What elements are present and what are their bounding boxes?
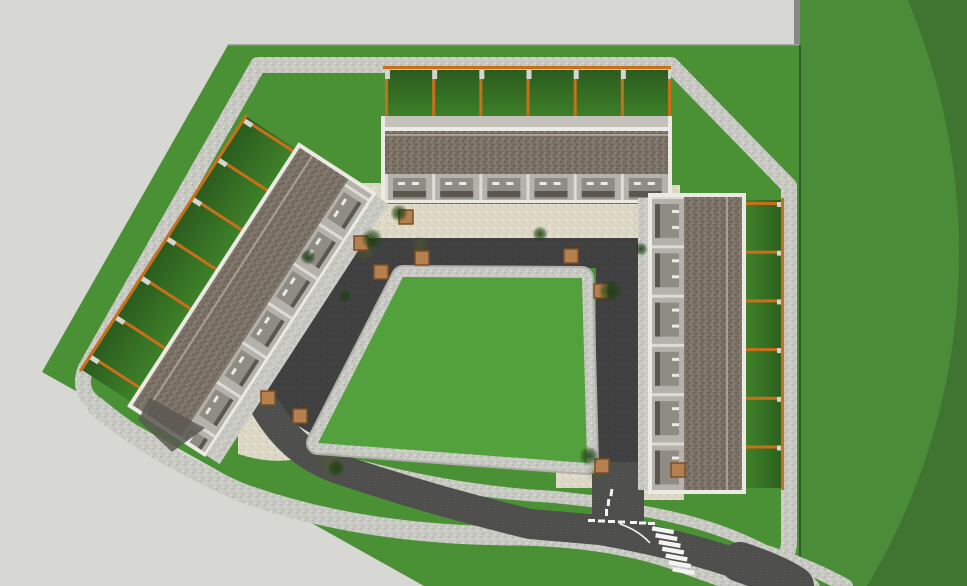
east-roof: [684, 196, 742, 492]
east-facade-units: [652, 196, 684, 492]
tree-instance: [634, 242, 648, 256]
north-eave-rear: [383, 127, 670, 131]
road-exit-flare: [740, 562, 794, 586]
tree-instance: [338, 289, 352, 303]
site-east-seam-line: [799, 45, 801, 586]
plaza-north-frontage: [384, 204, 668, 242]
tree-instance: [532, 226, 548, 242]
building-east-terrace: [638, 193, 784, 494]
site-north-edge-line: [228, 44, 800, 46]
plot-edge-wall: [794, 0, 800, 46]
east-end-cap-north: [648, 193, 746, 197]
planter-instance: [564, 249, 578, 263]
planter-instance: [415, 251, 429, 265]
east-eave-front: [648, 196, 652, 492]
planter-instance: [261, 391, 275, 405]
north-roof: [384, 131, 669, 174]
east-end-cap-south: [648, 490, 746, 494]
north-end-cap-west: [381, 116, 385, 203]
tree-instance: [390, 204, 408, 222]
site-plan-render: [0, 0, 967, 586]
north-garden-fences: [385, 70, 671, 116]
viewport-3d[interactable]: [0, 0, 967, 586]
north-garden-fence-top: [383, 66, 671, 69]
east-garden-fences: [746, 200, 784, 490]
tree-instance: [598, 279, 622, 303]
tree-instance: [300, 249, 316, 265]
north-facade-units: [385, 174, 668, 202]
planter-instance: [671, 463, 685, 477]
building-north-terrace: [381, 66, 672, 203]
tree-instance: [579, 446, 599, 466]
east-roof-ridge: [726, 196, 728, 492]
east-garden-fence-outer: [781, 198, 784, 490]
north-end-cap-east: [668, 116, 672, 203]
east-eave-rear: [742, 196, 746, 492]
tree-instance: [327, 459, 345, 477]
north-eave-front: [383, 200, 670, 203]
north-roof-ridge: [384, 134, 669, 136]
planter-instance: [293, 409, 307, 423]
planter-instance: [374, 265, 388, 279]
tree-instance: [361, 228, 383, 250]
courtyard-east-leg: [596, 238, 642, 470]
